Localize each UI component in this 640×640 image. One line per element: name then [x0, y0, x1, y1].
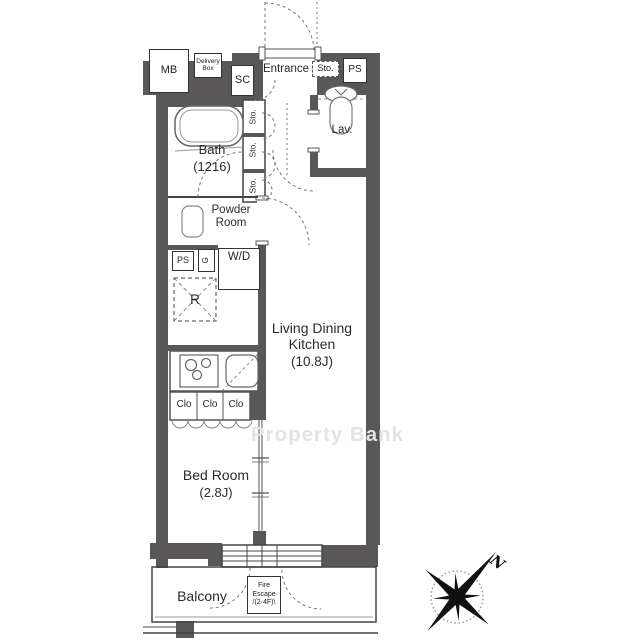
- refrigerator-label: R: [174, 278, 216, 321]
- water-heater-label: G: [202, 257, 210, 263]
- closet-label-2: Clo: [197, 395, 223, 415]
- meter-box-label: MB: [161, 65, 178, 77]
- bedroom-text: Bed Room: [183, 467, 249, 483]
- ldk-size: (10.8J): [252, 354, 372, 370]
- ldk-line1: Living Dining: [252, 320, 372, 336]
- bedroom-size-label: (2.8J): [168, 486, 264, 501]
- entrance-label: Entrance: [256, 63, 316, 81]
- balcony-hatch-arc-right: [282, 570, 321, 609]
- fire-escape-line3: /(2·4F)\: [253, 599, 276, 608]
- balcony-post: [176, 621, 194, 638]
- stove-icon: [180, 355, 218, 387]
- bedroom-label: Bed Room: [168, 467, 264, 483]
- storage-cell-3-label: Sto.: [239, 175, 269, 197]
- entrance-door-arc: [265, 2, 314, 52]
- meter-box: MB: [149, 49, 189, 93]
- washer-dryer-label: W/D: [228, 251, 250, 263]
- entrance-door-frame: [262, 49, 318, 58]
- clo-text-3: Clo: [228, 399, 243, 410]
- closet-label-3: Clo: [223, 395, 249, 415]
- powder-sink-icon: [182, 206, 203, 237]
- storage-top-label: Sto.: [317, 64, 333, 73]
- bath-size-text: (1216): [193, 159, 231, 174]
- lavatory-label: Lav.: [320, 124, 364, 139]
- sto-text-2: Sto.: [249, 142, 259, 157]
- watermark: Property Bank: [240, 423, 415, 447]
- refrigerator-text: R: [190, 292, 200, 308]
- delivery-box: Delivery Box: [194, 53, 222, 78]
- delivery-box-label: Delivery Box: [195, 59, 221, 73]
- fire-escape-line2: Escape: [252, 591, 275, 600]
- storage-cell-1-label: Sto.: [239, 106, 269, 128]
- compass-rose: N: [396, 524, 528, 640]
- powder-room-label: Powder Room: [203, 204, 259, 236]
- compass-north-label: N: [486, 550, 510, 574]
- floor-plan: N MB Delivery Box SC Sto. PS PS G W/D St…: [0, 0, 640, 640]
- clo-text-2: Clo: [202, 399, 217, 410]
- balcony-window: [222, 545, 322, 567]
- pipe-space-mid-box: PS: [172, 251, 194, 271]
- ldk-label: Living Dining Kitchen (10.8J): [252, 320, 372, 370]
- entrance-text: Entrance: [263, 63, 309, 75]
- closet-label-1: Clo: [171, 395, 197, 415]
- fire-escape-line1: Fire: [258, 582, 270, 591]
- clo-text-1: Clo: [176, 399, 191, 410]
- pipe-space-mid-label: PS: [177, 256, 189, 265]
- washer-dryer-box: W/D: [218, 248, 260, 290]
- pipe-space-top-label: PS: [348, 65, 361, 76]
- lavatory-door-gap: [309, 112, 319, 152]
- storage-top-box: Sto.: [312, 61, 339, 77]
- water-heater-box: G: [198, 249, 215, 272]
- shoe-closet-box: SC: [231, 65, 254, 96]
- balcony-label: Balcony: [163, 588, 241, 604]
- powder-door-arc: [262, 198, 309, 245]
- balcony-text: Balcony: [177, 588, 227, 604]
- shoe-closet-label: SC: [235, 75, 250, 87]
- ldk-line2: Kitchen: [252, 336, 372, 352]
- watermark-text: Property Bank: [251, 423, 404, 446]
- sto-text-1: Sto.: [249, 109, 259, 124]
- storage-cell-2-label: Sto.: [239, 139, 269, 161]
- pipe-space-top-box: PS: [343, 58, 367, 83]
- powder-room-text: Powder Room: [212, 204, 251, 229]
- fire-escape-box: Fire Escape /(2·4F)\: [247, 576, 281, 614]
- bath-size-label: (1216): [178, 160, 246, 178]
- lavatory-door-arc: [273, 150, 314, 191]
- bath-text: Bath: [199, 142, 226, 157]
- bath-label: Bath: [182, 143, 242, 159]
- lavatory-text: Lav.: [332, 124, 353, 136]
- kitchen-counter: [170, 351, 259, 391]
- sto-text-3: Sto.: [249, 178, 259, 193]
- bedroom-size-text: (2.8J): [199, 485, 232, 500]
